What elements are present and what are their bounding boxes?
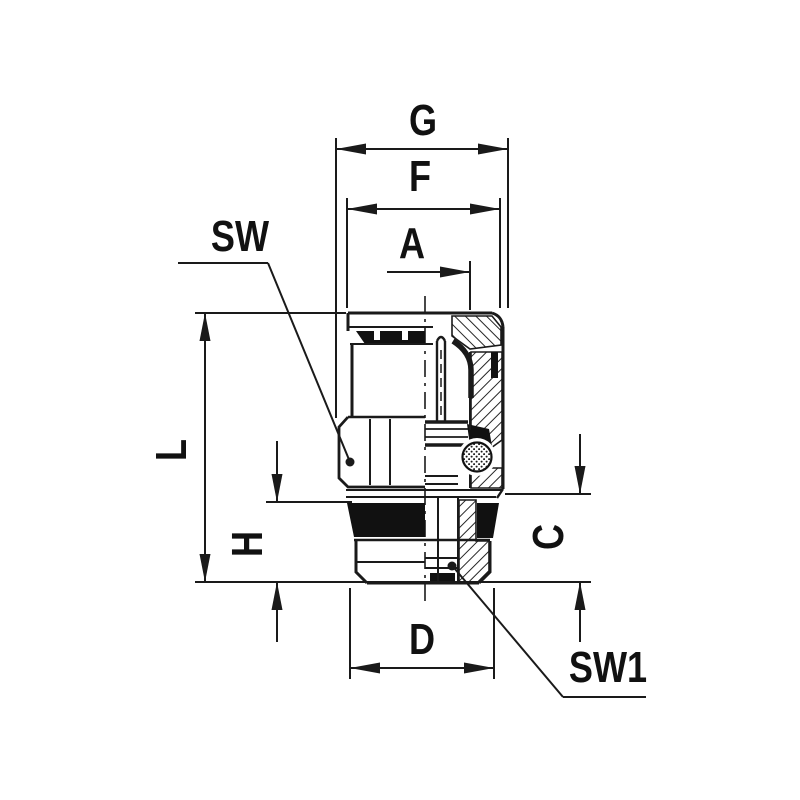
seal-washer-left bbox=[347, 503, 425, 537]
dim-label-SW1: SW1 bbox=[569, 646, 647, 690]
dim-label-C: C bbox=[527, 524, 571, 550]
dim-label-D: D bbox=[409, 618, 435, 662]
dim-label-SW: SW bbox=[211, 215, 269, 259]
o-ring-seal bbox=[458, 438, 496, 476]
cap-grip-band bbox=[356, 331, 425, 344]
background bbox=[0, 0, 800, 800]
collet-spring-section bbox=[491, 352, 498, 378]
bore-step-section bbox=[430, 573, 455, 581]
dim-label-H: H bbox=[226, 531, 270, 557]
fitting-drawing bbox=[0, 0, 800, 800]
dim-label-L: L bbox=[150, 439, 194, 461]
dim-label-F: F bbox=[409, 155, 431, 199]
dim-label-A: A bbox=[399, 222, 425, 266]
dim-label-G: G bbox=[409, 99, 437, 143]
technical-drawing-page: G F A SW L H C D SW1 bbox=[0, 0, 800, 800]
